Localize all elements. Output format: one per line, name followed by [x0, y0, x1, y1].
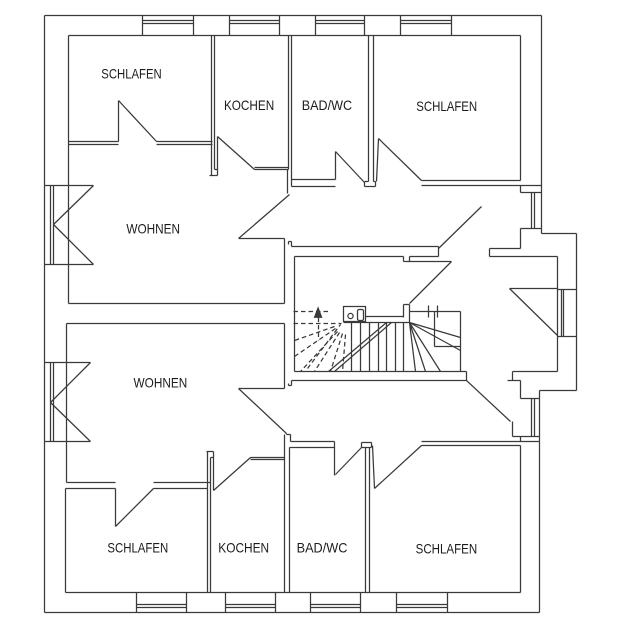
svg-text:KOCHEN: KOCHEN — [224, 97, 274, 113]
svg-text:SCHLAFEN: SCHLAFEN — [107, 539, 168, 555]
svg-text:BAD/WC: BAD/WC — [302, 97, 352, 113]
svg-text:SCHLAFEN: SCHLAFEN — [416, 541, 478, 557]
svg-text:WOHNEN: WOHNEN — [126, 221, 180, 237]
svg-text:BAD/WC: BAD/WC — [297, 539, 348, 555]
svg-text:KOCHEN: KOCHEN — [218, 539, 269, 555]
svg-text:SCHLAFEN: SCHLAFEN — [416, 98, 477, 114]
svg-text:SCHLAFEN: SCHLAFEN — [101, 65, 161, 81]
svg-text:WOHNEN: WOHNEN — [134, 374, 188, 390]
